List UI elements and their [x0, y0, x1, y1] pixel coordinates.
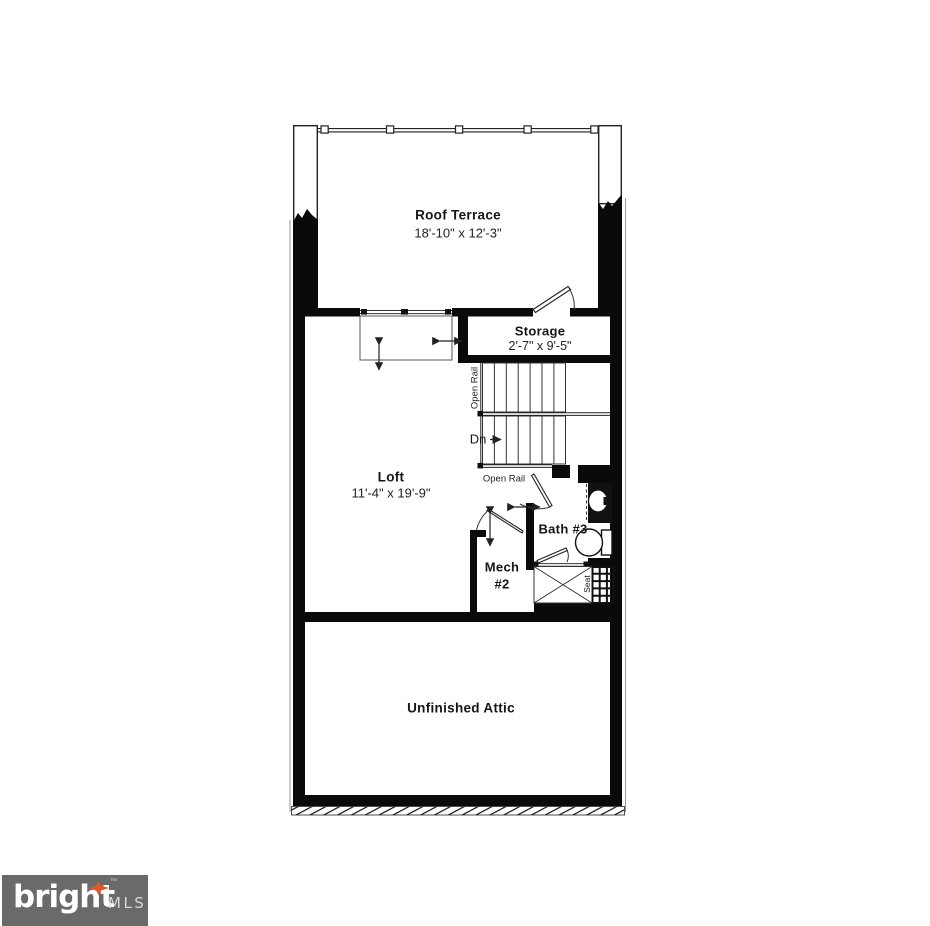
vanity-sink-icon [587, 483, 613, 523]
brand-logo-suffix: MLS [108, 894, 146, 912]
room-label-unfinished-attic: Unfinished Attic [407, 701, 515, 715]
shower-door-swing-icon [537, 548, 567, 563]
room-label-mech-2-number: #2 [494, 578, 509, 591]
room-dims-storage: 2'-7" x 9'-5" [509, 340, 572, 353]
floorplan-page: Roof Terrace 18'-10" x 12'-3" Storage 2'… [0, 0, 930, 926]
sliding-door-icon [360, 309, 462, 370]
outer-outline [290, 198, 626, 812]
shower-seat-label: Seat [583, 575, 592, 593]
room-label-mech-2: Mech [485, 561, 519, 574]
brand-logo-trademark: ™ [110, 878, 117, 885]
terrace-door-swing-icon [533, 287, 574, 313]
room-label-loft: Loft [378, 470, 405, 484]
room-dims-loft: 11'-4" x 19'-9" [352, 487, 431, 500]
room-dims-roof-terrace: 18'-10" x 12'-3" [414, 227, 501, 240]
room-label-storage: Storage [515, 325, 566, 338]
wall-break-right [598, 194, 622, 309]
room-label-roof-terrace: Roof Terrace [415, 208, 501, 222]
mech-door-swing-icon [477, 510, 524, 547]
floorplan-drawing [0, 0, 930, 926]
open-rail-label-vertical: Open Rail [470, 367, 480, 409]
walls [293, 308, 622, 806]
stairs-down-label: Dn [470, 433, 487, 446]
open-rail-label-horizontal: Open Rail [483, 474, 525, 484]
brand-logo-star-icon [88, 881, 110, 895]
room-label-bath-3: Bath #3 [538, 523, 587, 536]
foundation-hatch [292, 807, 625, 816]
terrace-railing-icon [318, 126, 598, 133]
shower-icon [534, 548, 615, 603]
stairs-icon [478, 363, 611, 468]
brand-logo: bright ™ MLS [2, 875, 148, 926]
wall-break-left [293, 209, 318, 309]
